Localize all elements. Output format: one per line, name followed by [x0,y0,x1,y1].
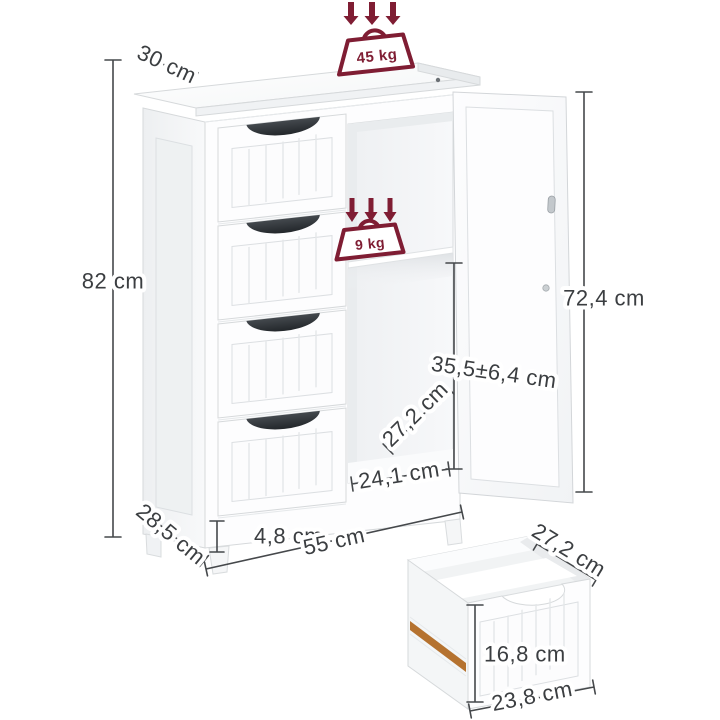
dim-overall-height: 82 cm [82,60,144,537]
dim-overall-height-label: 82 cm [82,269,144,294]
top-load-badge: 45 kg [339,2,413,75]
product-dimension-diagram: 45 kg 9 kg [0,0,720,720]
cabinet [134,63,573,574]
dim-door-height-label: 72,4 cm [563,286,645,311]
down-arrows-icon [344,2,401,25]
door-hinge-pin [436,78,440,82]
dim-drawer-height-label: 16,8 cm [484,642,566,667]
dim-top-depth: 30 cm [133,39,200,88]
cabinet-side-panel [143,108,205,557]
dim-top-depth-label: 30 cm [133,39,200,88]
door-knob [543,285,549,291]
down-arrows-icon [346,198,397,222]
dim-door-height: 72,4 cm [563,92,645,492]
cabinet-front-left-foot [209,546,229,574]
shelf-load-label: 9 kg [354,234,386,253]
cabinet-front-right-foot [445,519,462,545]
door-latch [548,196,556,213]
